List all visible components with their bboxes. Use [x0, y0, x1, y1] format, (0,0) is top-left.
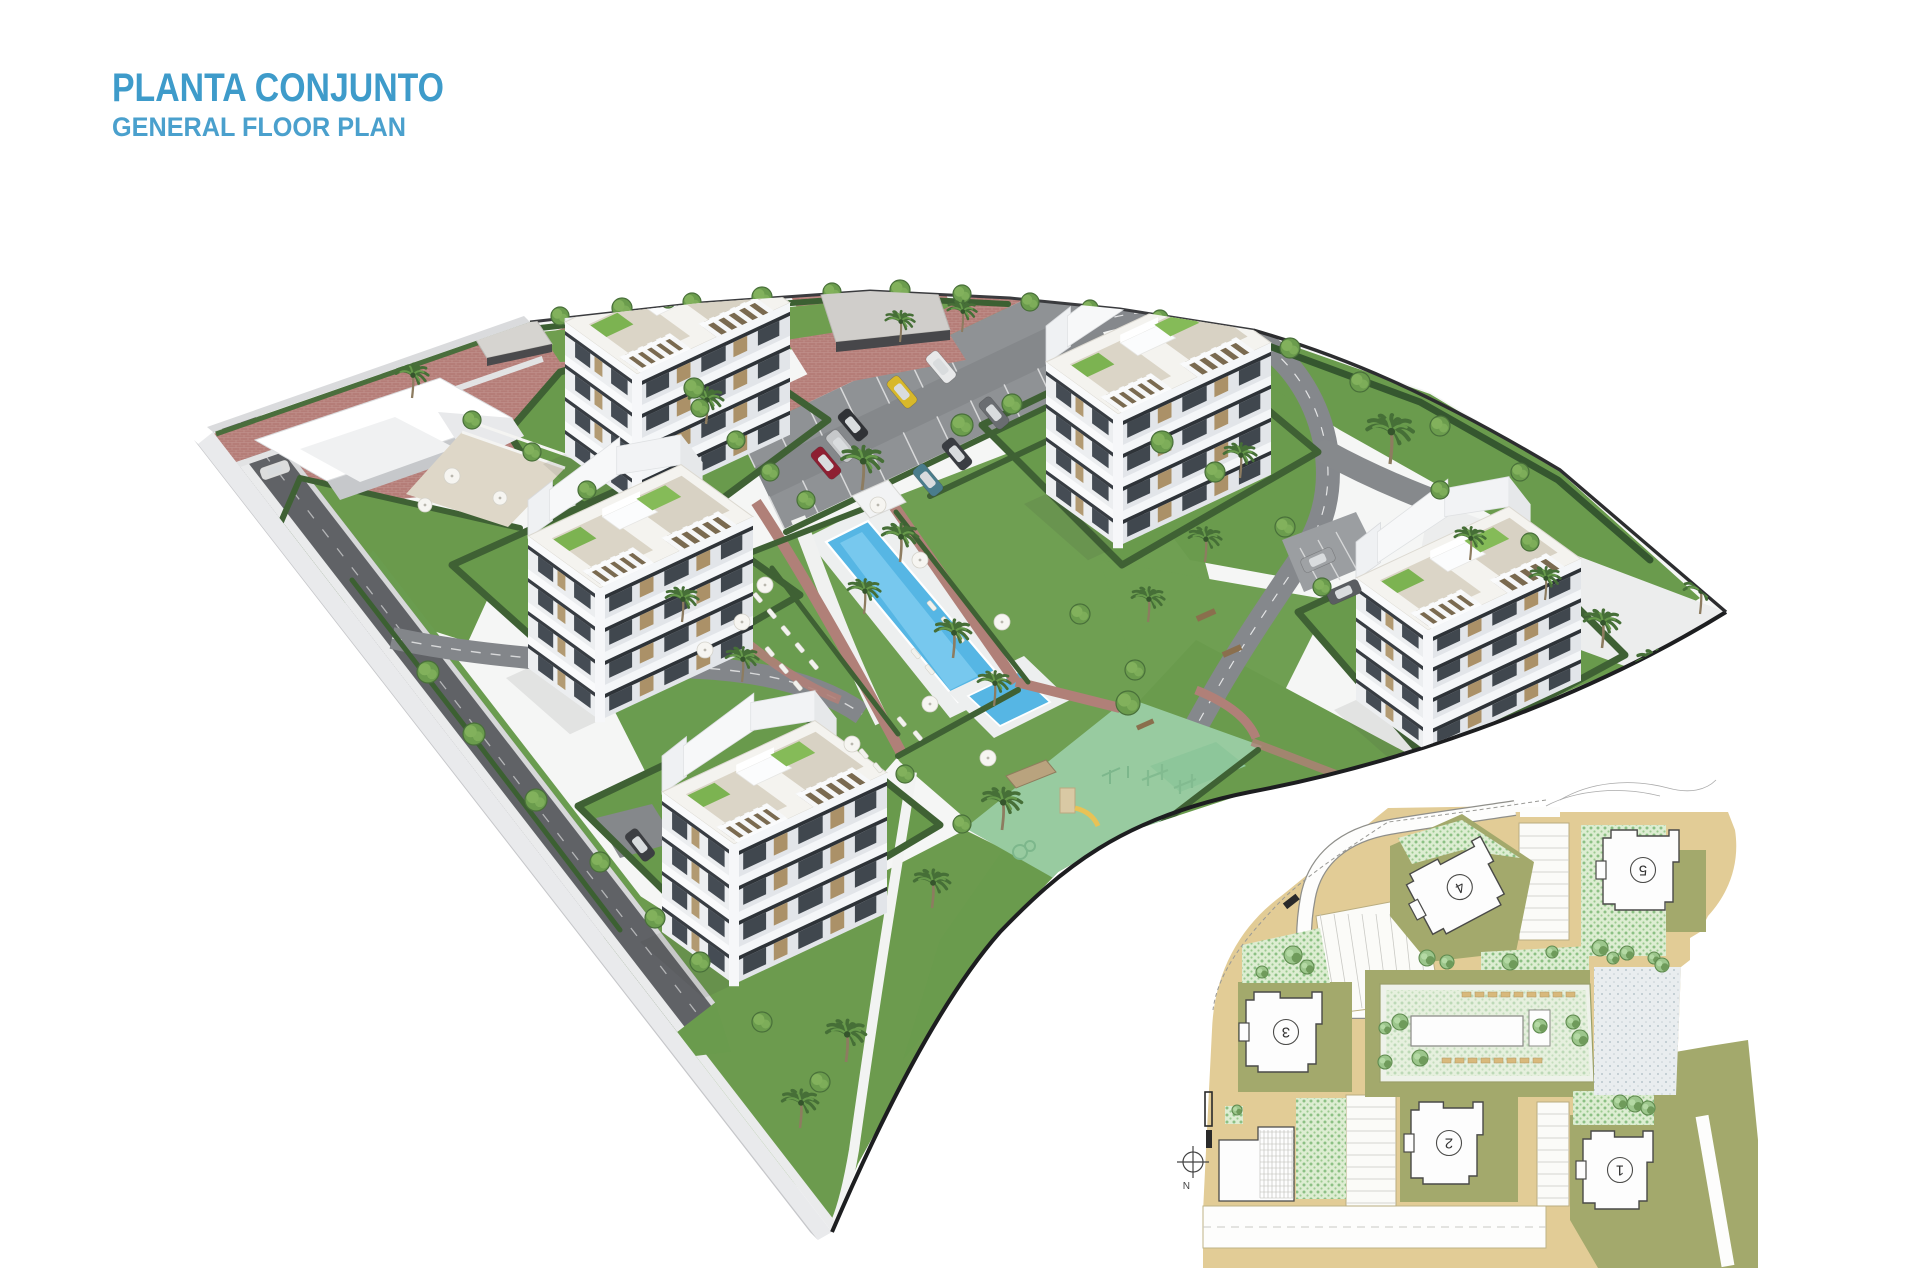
svg-text:1: 1 [1616, 1162, 1624, 1179]
svg-text:N: N [1183, 1179, 1190, 1190]
svg-text:3: 3 [1282, 1024, 1290, 1041]
svg-text:GENERAL FLOOR PLAN: GENERAL FLOOR PLAN [112, 112, 406, 142]
svg-text:2: 2 [1445, 1135, 1453, 1152]
svg-text:5: 5 [1639, 862, 1647, 879]
svg-text:PLANTA CONJUNTO: PLANTA CONJUNTO [112, 66, 444, 110]
